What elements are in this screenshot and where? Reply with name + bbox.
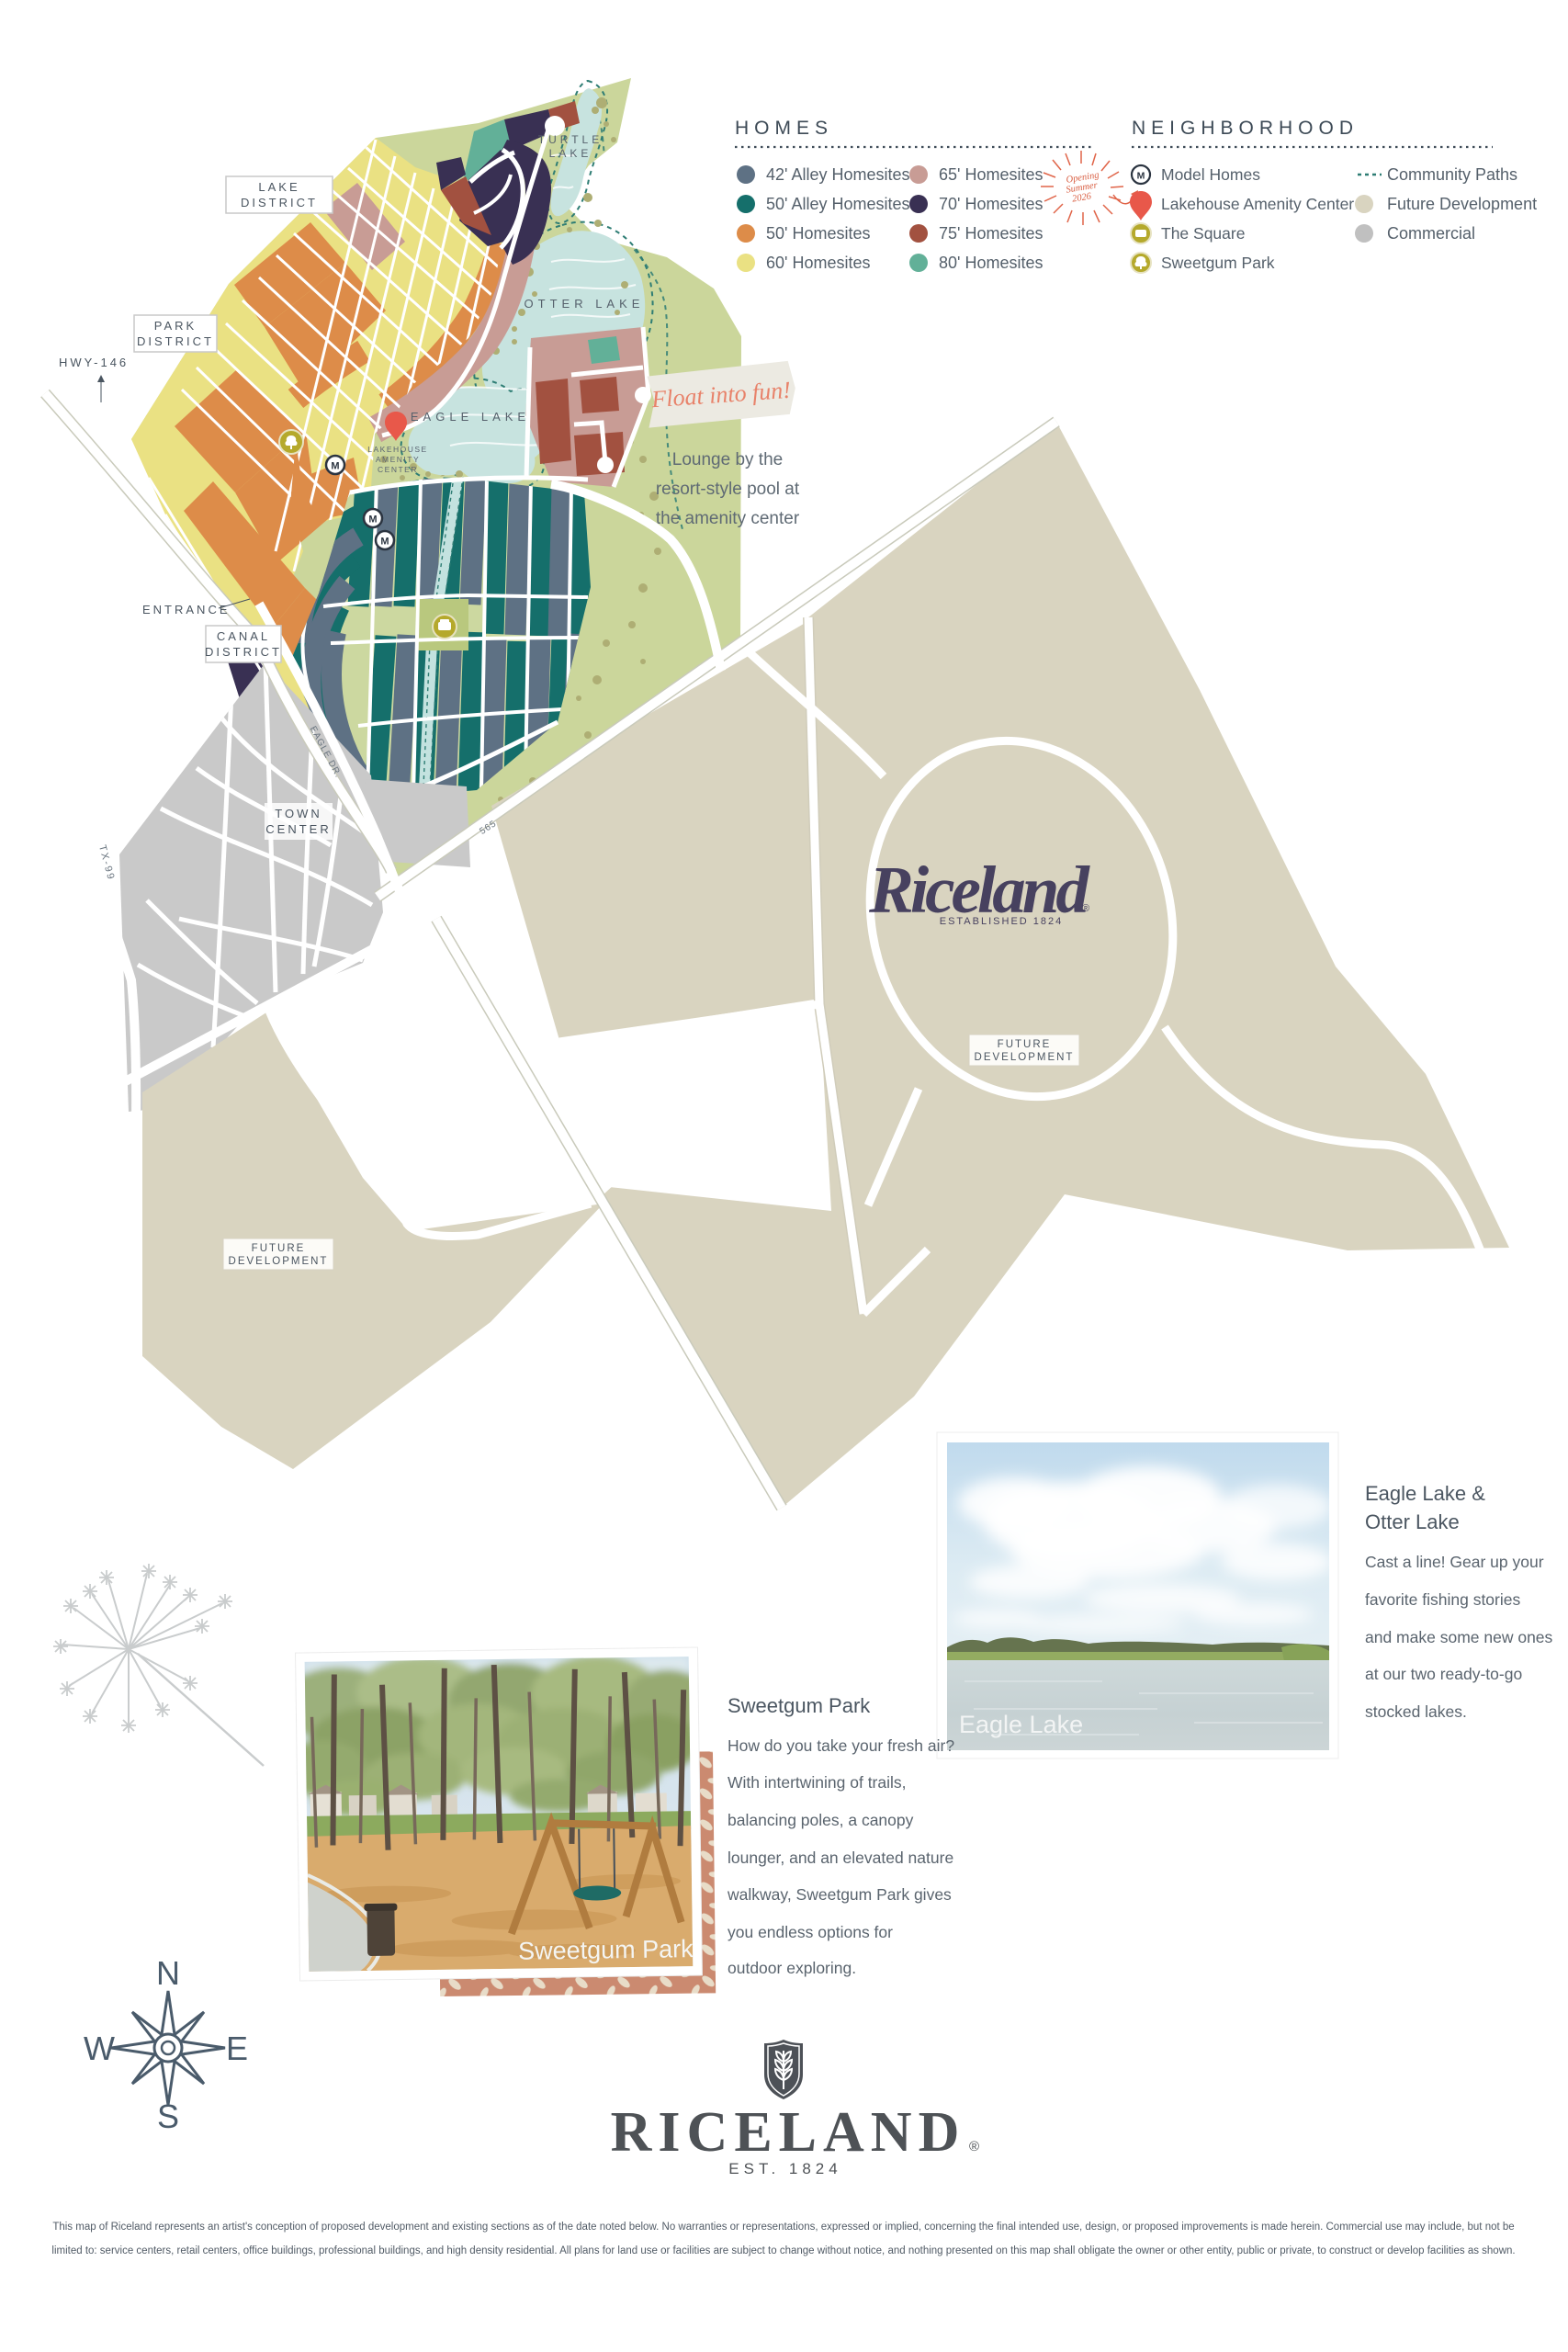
svg-text:RICELAND: RICELAND	[611, 2101, 966, 2164]
svg-text:E: E	[226, 2030, 248, 2067]
svg-text:EAGLE LAKE: EAGLE LAKE	[411, 410, 530, 424]
svg-text:DISTRICT: DISTRICT	[205, 645, 282, 659]
svg-text:75' Homesites: 75' Homesites	[939, 224, 1043, 243]
svg-text:stocked lakes.: stocked lakes.	[1365, 1702, 1467, 1721]
svg-text:favorite fishing stories: favorite fishing stories	[1365, 1590, 1520, 1609]
svg-text:and make some new ones: and make some new ones	[1365, 1628, 1553, 1646]
svg-text:S: S	[157, 2098, 179, 2135]
svg-text:42' Alley Homesites: 42' Alley Homesites	[766, 165, 910, 184]
svg-text:Lounge by the: Lounge by the	[672, 450, 783, 469]
svg-text:ESTABLISHED 1824: ESTABLISHED 1824	[940, 916, 1064, 927]
svg-text:Commercial: Commercial	[1387, 224, 1475, 243]
svg-text:Future Development: Future Development	[1387, 195, 1537, 213]
svg-text:Eagle Lake: Eagle Lake	[959, 1711, 1083, 1738]
svg-text:HOMES: HOMES	[735, 118, 833, 139]
svg-text:Model Homes: Model Homes	[1161, 165, 1260, 184]
svg-text:M: M	[368, 514, 377, 526]
svg-text:DEVELOPMENT: DEVELOPMENT	[975, 1052, 1075, 1063]
svg-text:you endless options for: you endless options for	[728, 1923, 893, 1941]
svg-text:DISTRICT: DISTRICT	[241, 196, 318, 209]
svg-text:LAKE: LAKE	[549, 147, 592, 160]
svg-text:50' Alley Homesites: 50' Alley Homesites	[766, 195, 910, 213]
svg-text:The Square: The Square	[1161, 224, 1245, 243]
svg-text:CENTER: CENTER	[265, 822, 331, 836]
svg-text:N: N	[156, 1954, 180, 1992]
svg-text:PARK: PARK	[154, 319, 197, 333]
svg-text:FUTURE: FUTURE	[998, 1039, 1052, 1050]
svg-text:Community Paths: Community Paths	[1387, 165, 1517, 184]
svg-text:outdoor exploring.: outdoor exploring.	[728, 1959, 856, 1977]
svg-text:Eagle Lake &: Eagle Lake &	[1365, 1482, 1485, 1505]
svg-text:CANAL: CANAL	[217, 629, 270, 643]
svg-text:DISTRICT: DISTRICT	[137, 334, 214, 348]
svg-text:Otter Lake: Otter Lake	[1365, 1510, 1460, 1533]
svg-text:M: M	[331, 461, 339, 472]
svg-text:This map of Riceland represent: This map of Riceland represents an artis…	[52, 2222, 1514, 2233]
svg-text:Sweetgum Park: Sweetgum Park	[728, 1694, 871, 1717]
svg-text:walkway, Sweetgum Park gives: walkway, Sweetgum Park gives	[727, 1885, 952, 1904]
svg-text:balancing poles, a canopy: balancing poles, a canopy	[728, 1811, 914, 1829]
svg-text:resort-style pool at: resort-style pool at	[656, 480, 800, 499]
svg-text:CENTER: CENTER	[378, 465, 418, 474]
svg-text:ENTRANCE: ENTRANCE	[142, 603, 231, 616]
svg-text:limited to: service centers, r: limited to: service centers, retail cent…	[51, 2245, 1515, 2256]
svg-text:LAKEHOUSE: LAKEHOUSE	[367, 445, 427, 454]
svg-text:M: M	[1137, 171, 1145, 182]
svg-text:lounger, and an elevated natur: lounger, and an elevated nature	[728, 1849, 953, 1867]
svg-text:M: M	[380, 537, 389, 548]
svg-text:OTTER LAKE: OTTER LAKE	[525, 297, 645, 311]
svg-text:LAKE: LAKE	[258, 180, 299, 194]
svg-text:70' Homesites: 70' Homesites	[939, 195, 1043, 213]
svg-text:Sweetgum Park: Sweetgum Park	[518, 1935, 694, 1965]
svg-text:65' Homesites: 65' Homesites	[939, 165, 1043, 184]
svg-text:at our two ready-to-go: at our two ready-to-go	[1365, 1665, 1522, 1683]
svg-text:TURTLE: TURTLE	[538, 133, 603, 146]
svg-text:the amenity center: the amenity center	[656, 509, 800, 528]
svg-text:®: ®	[969, 2139, 979, 2154]
svg-text:FUTURE: FUTURE	[252, 1243, 306, 1254]
svg-text:W: W	[84, 2030, 115, 2067]
svg-text:®: ®	[1082, 903, 1089, 914]
svg-text:60' Homesites: 60' Homesites	[766, 254, 870, 272]
svg-text:EST. 1824: EST. 1824	[728, 2160, 841, 2177]
svg-text:80' Homesites: 80' Homesites	[939, 254, 1043, 272]
svg-text:Cast a line! Gear up your: Cast a line! Gear up your	[1365, 1553, 1544, 1571]
svg-text:With intertwining of trails,: With intertwining of trails,	[728, 1773, 907, 1792]
svg-text:Lakehouse Amenity Center: Lakehouse Amenity Center	[1161, 195, 1354, 213]
svg-text:50' Homesites: 50' Homesites	[766, 224, 870, 243]
svg-text:Sweetgum Park: Sweetgum Park	[1161, 254, 1275, 272]
svg-text:NEIGHBORHOOD: NEIGHBORHOOD	[1132, 118, 1359, 139]
svg-text:AMENITY: AMENITY	[376, 455, 420, 464]
svg-text:HWY-146: HWY-146	[59, 356, 129, 369]
svg-text:How do you take your fresh air: How do you take your fresh air?	[728, 1736, 954, 1755]
svg-text:DEVELOPMENT: DEVELOPMENT	[229, 1256, 329, 1267]
svg-text:TOWN: TOWN	[275, 807, 321, 820]
